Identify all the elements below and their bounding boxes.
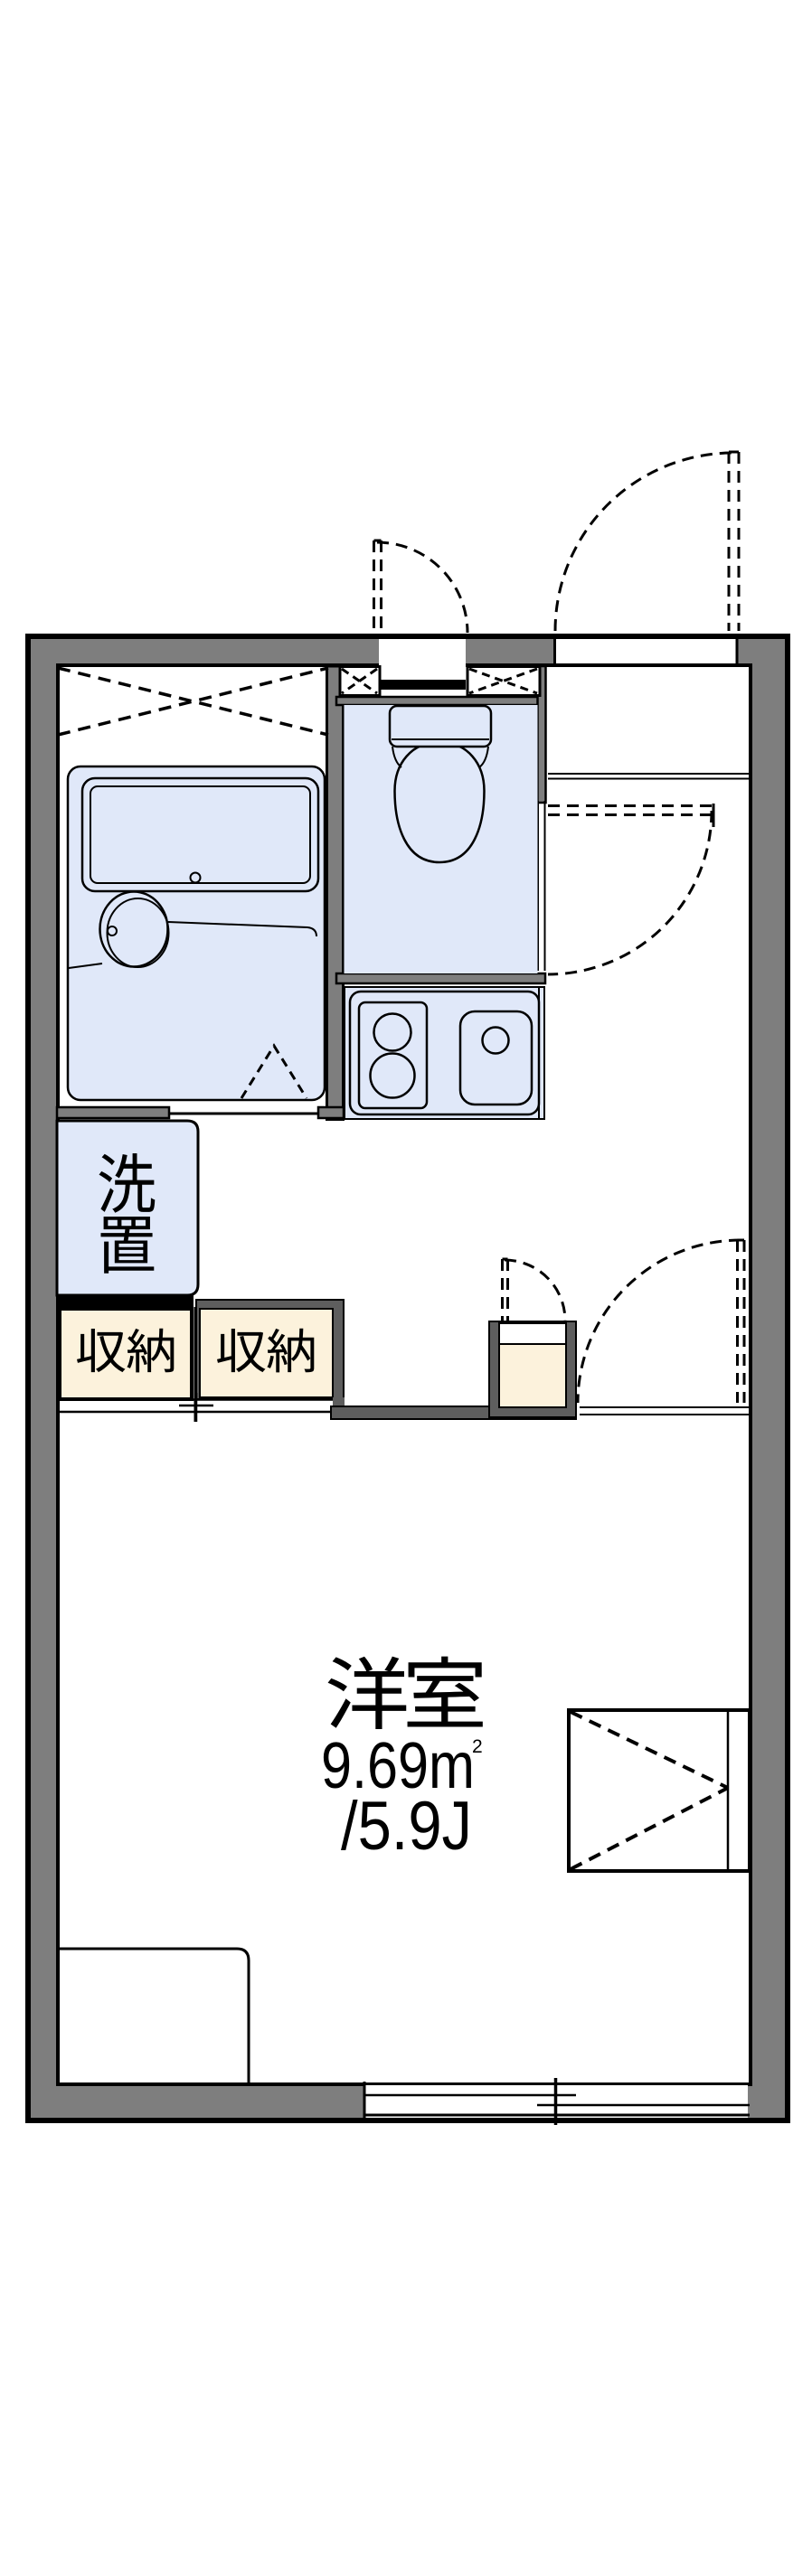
svg-text:2: 2 — [472, 1736, 483, 1757]
svg-text:/5.9J: /5.9J — [341, 1788, 472, 1865]
